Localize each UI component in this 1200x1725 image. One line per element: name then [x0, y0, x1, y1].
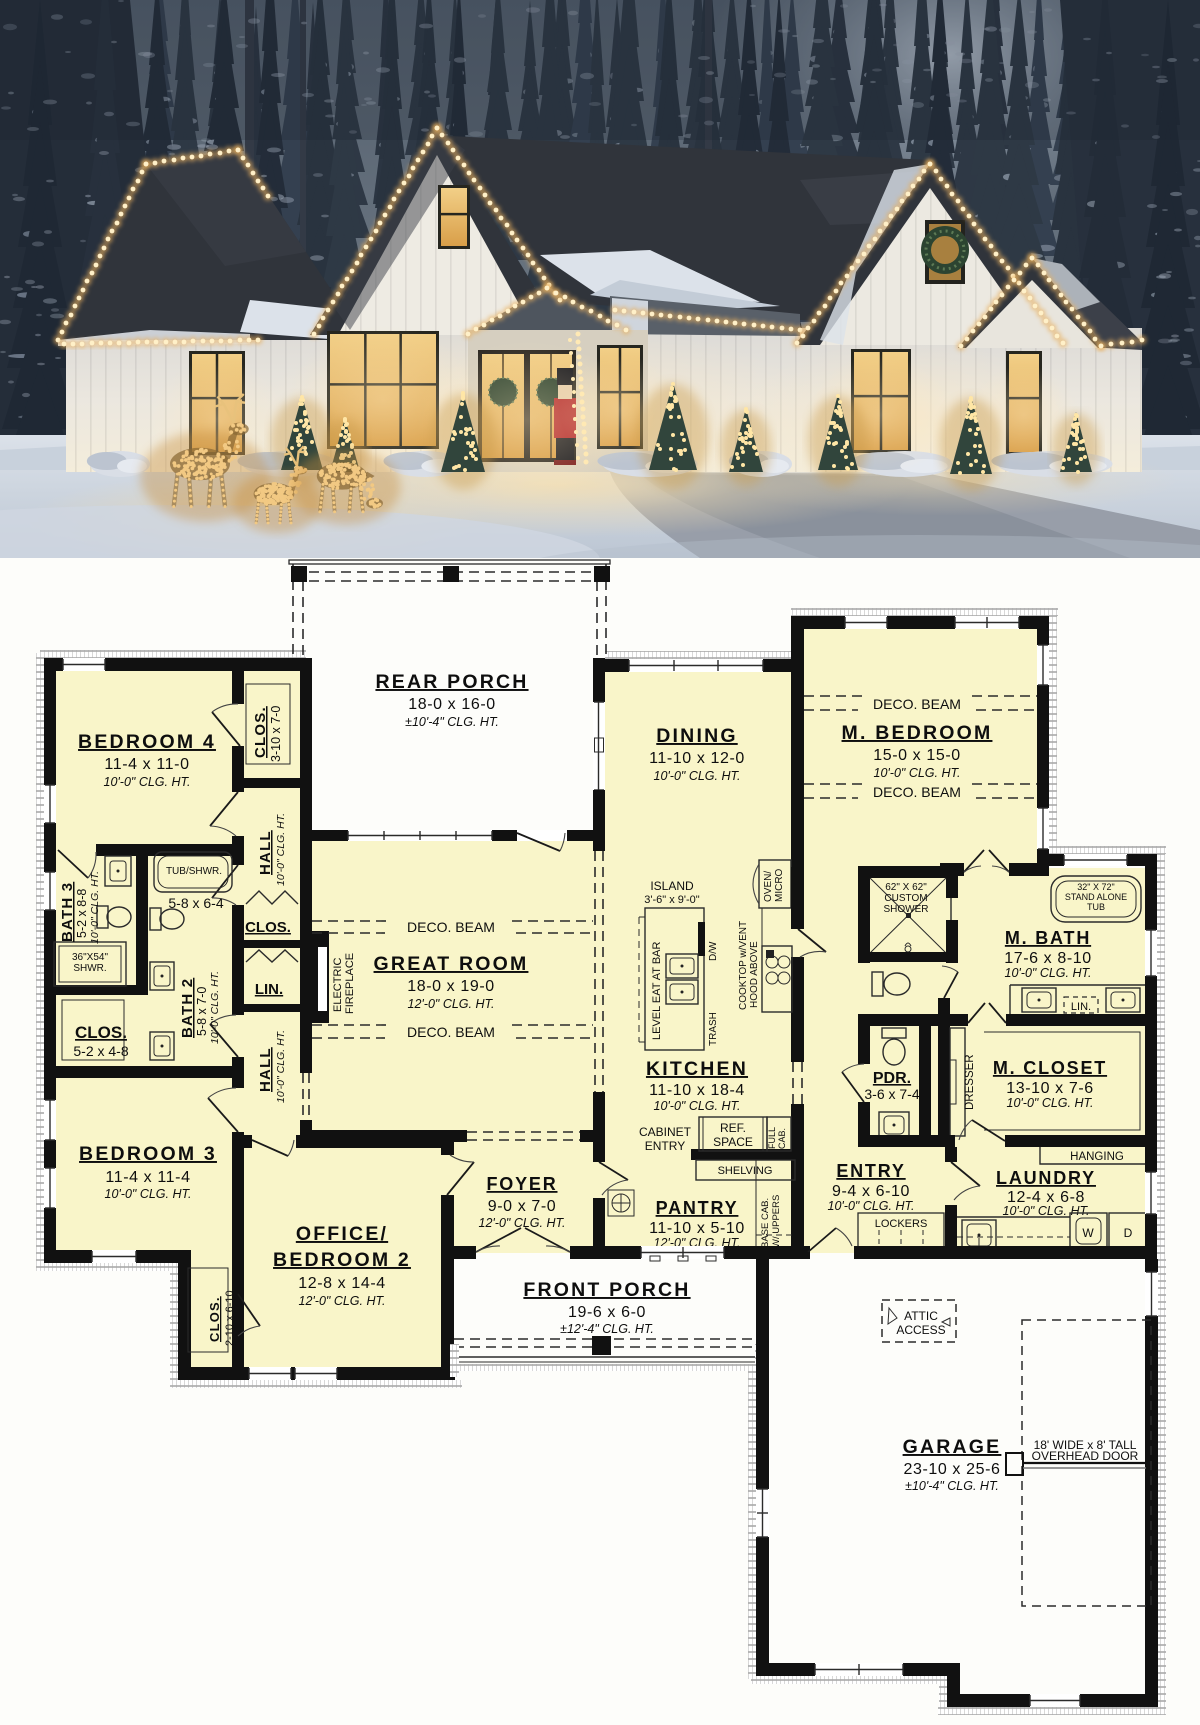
svg-text:5-2 x 8-8: 5-2 x 8-8: [75, 889, 89, 938]
svg-text:10'-0" CLG. HT.: 10'-0" CLG. HT.: [89, 871, 101, 944]
svg-text:D: D: [1124, 1226, 1133, 1240]
svg-text:23-10 x 25-6: 23-10 x 25-6: [903, 1461, 1000, 1478]
svg-text:CLOS.: CLOS.: [245, 919, 291, 936]
svg-text:±10'-4" CLG. HT.: ±10'-4" CLG. HT.: [405, 715, 499, 729]
svg-text:REAR PORCH: REAR PORCH: [375, 671, 528, 693]
svg-text:MICRO: MICRO: [774, 868, 785, 902]
svg-text:5-8 x 7-0: 5-8 x 7-0: [195, 987, 209, 1036]
svg-text:5-2 x 4-8: 5-2 x 4-8: [73, 1043, 128, 1059]
svg-text:19-6 x 6-0: 19-6 x 6-0: [568, 1304, 646, 1321]
svg-text:STAND ALONE: STAND ALONE: [1065, 892, 1127, 902]
svg-text:10'-0" CLG. HT.: 10'-0" CLG. HT.: [105, 1187, 192, 1201]
svg-text:LEVEL EAT AT BAR: LEVEL EAT AT BAR: [651, 942, 663, 1040]
svg-text:CUSTOM: CUSTOM: [884, 893, 927, 904]
svg-text:DECO. BEAM: DECO. BEAM: [407, 919, 495, 935]
svg-text:TUB: TUB: [1087, 902, 1105, 912]
svg-text:10'-0" CLG. HT.: 10'-0" CLG. HT.: [1003, 1204, 1090, 1218]
svg-text:12-8 x 14-4: 12-8 x 14-4: [298, 1275, 386, 1292]
svg-text:SHWR.: SHWR.: [73, 963, 106, 974]
svg-text:10'-0" CLG. HT.: 10'-0" CLG. HT.: [828, 1199, 915, 1213]
svg-text:GREAT ROOM: GREAT ROOM: [374, 953, 529, 975]
svg-text:3'-6" x 9'-0": 3'-6" x 9'-0": [644, 894, 700, 906]
svg-text:10'-0" CLG. HT.: 10'-0" CLG. HT.: [654, 1099, 741, 1113]
svg-text:ENTRY: ENTRY: [645, 1139, 685, 1153]
svg-text:W/ UPPERS: W/ UPPERS: [771, 1195, 782, 1248]
svg-text:CABINET: CABINET: [639, 1125, 692, 1139]
svg-text:LIN.: LIN.: [1071, 1001, 1091, 1013]
svg-text:OVERHEAD DOOR: OVERHEAD DOOR: [1032, 1449, 1139, 1463]
svg-text:11-4 x 11-4: 11-4 x 11-4: [105, 1169, 190, 1186]
svg-text:M. BEDROOM: M. BEDROOM: [842, 722, 993, 744]
svg-text:9-0 x 7-0: 9-0 x 7-0: [488, 1198, 557, 1215]
svg-text:12'-0" CLG. HT.: 12'-0" CLG. HT.: [479, 1216, 566, 1230]
svg-text:LIN.: LIN.: [255, 981, 283, 998]
svg-text:ELECTRIC: ELECTRIC: [332, 958, 344, 1012]
svg-text:10'-0" CLG. HT.: 10'-0" CLG. HT.: [654, 769, 741, 783]
svg-text:ENTRY: ENTRY: [836, 1161, 905, 1181]
svg-text:DECO. BEAM: DECO. BEAM: [873, 784, 961, 800]
svg-text:SHELVING: SHELVING: [718, 1165, 773, 1177]
svg-text:HANGING: HANGING: [1070, 1151, 1124, 1163]
svg-text:32" X 72": 32" X 72": [1077, 882, 1114, 892]
svg-text:FULL: FULL: [767, 1127, 777, 1149]
svg-text:HOOD ABOVE: HOOD ABOVE: [749, 941, 760, 1008]
svg-text:18-0 x 16-0: 18-0 x 16-0: [408, 696, 496, 713]
svg-text:D/W: D/W: [708, 941, 719, 961]
svg-text:11-10 x 5-10: 11-10 x 5-10: [649, 1220, 745, 1237]
svg-text:FRONT PORCH: FRONT PORCH: [523, 1279, 690, 1301]
svg-text:TUB/SHWR.: TUB/SHWR.: [166, 866, 222, 877]
svg-text:5-8 x 6-4: 5-8 x 6-4: [168, 895, 223, 911]
svg-text:10'-0" CLG. HT.: 10'-0" CLG. HT.: [1005, 966, 1092, 980]
svg-text:ISLAND: ISLAND: [650, 879, 694, 893]
svg-text:DECO. BEAM: DECO. BEAM: [873, 696, 961, 712]
svg-text:PANTRY: PANTRY: [656, 1198, 739, 1218]
svg-text:10'-0" CLG. HT.: 10'-0" CLG. HT.: [209, 971, 221, 1044]
svg-text:REF.: REF.: [720, 1121, 746, 1135]
svg-text:11-10 x 18-4: 11-10 x 18-4: [649, 1082, 745, 1099]
svg-text:CLOS.: CLOS.: [252, 706, 269, 758]
svg-text:KITCHEN: KITCHEN: [646, 1058, 748, 1080]
svg-text:M. BATH: M. BATH: [1005, 928, 1091, 948]
svg-text:HALL: HALL: [257, 1047, 274, 1092]
svg-text:10'-0" CLG. HT.: 10'-0" CLG. HT.: [1007, 1096, 1094, 1110]
svg-text:36"X54": 36"X54": [72, 952, 108, 963]
svg-text:10'-0" CLG. HT.: 10'-0" CLG. HT.: [275, 813, 287, 886]
svg-text:M. CLOSET: M. CLOSET: [993, 1058, 1107, 1078]
svg-text:ATTIC: ATTIC: [904, 1309, 938, 1323]
svg-text:CLOS.: CLOS.: [207, 1296, 222, 1342]
svg-text:LAUNDRY: LAUNDRY: [996, 1168, 1096, 1188]
svg-text:17-6 x 8-10: 17-6 x 8-10: [1004, 950, 1092, 967]
svg-text:62" X 62": 62" X 62": [885, 882, 927, 893]
svg-text:SPACE: SPACE: [713, 1135, 753, 1149]
svg-text:10'-0" CLG. HT.: 10'-0" CLG. HT.: [275, 1030, 287, 1103]
svg-text:SHOWER: SHOWER: [884, 904, 929, 915]
svg-text:12'-0" CLG. HT.: 12'-0" CLG. HT.: [408, 997, 495, 1011]
svg-text:BATH 2: BATH 2: [179, 978, 196, 1038]
svg-text:10'-0" CLG. HT.: 10'-0" CLG. HT.: [104, 775, 191, 789]
svg-text:DECO. BEAM: DECO. BEAM: [407, 1024, 495, 1040]
svg-text:DRESSER: DRESSER: [964, 1054, 976, 1110]
svg-text:BEDROOM 3: BEDROOM 3: [79, 1143, 217, 1165]
svg-text:BEDROOM 2: BEDROOM 2: [273, 1249, 411, 1271]
svg-text:PDR.: PDR.: [873, 1070, 911, 1087]
svg-text:13-10 x 7-6: 13-10 x 7-6: [1006, 1080, 1094, 1097]
svg-text:FIREPLACE: FIREPLACE: [344, 953, 356, 1014]
svg-text:CLOS.: CLOS.: [75, 1023, 127, 1042]
svg-text:CAB.: CAB.: [777, 1128, 787, 1149]
svg-text:18-0 x 19-0: 18-0 x 19-0: [407, 978, 495, 995]
svg-text:BATH 3: BATH 3: [59, 882, 76, 942]
svg-text:12'-0" CLG. HT.: 12'-0" CLG. HT.: [299, 1294, 386, 1308]
svg-text:BEDROOM 4: BEDROOM 4: [78, 731, 216, 753]
svg-text:ACCESS: ACCESS: [896, 1323, 945, 1337]
svg-text:11-4 x 11-0: 11-4 x 11-0: [104, 756, 189, 773]
svg-text:TRASH: TRASH: [708, 1012, 719, 1046]
svg-text:10'-0" CLG. HT.: 10'-0" CLG. HT.: [874, 766, 961, 780]
svg-text:DINING: DINING: [656, 725, 737, 747]
svg-text:LOCKERS: LOCKERS: [875, 1218, 928, 1230]
svg-text:±12'-4" CLG. HT.: ±12'-4" CLG. HT.: [560, 1322, 654, 1336]
svg-text:GARAGE: GARAGE: [903, 1436, 1002, 1458]
svg-text:OFFICE/: OFFICE/: [296, 1223, 388, 1245]
svg-text:BASE CAB.: BASE CAB.: [760, 1198, 771, 1248]
svg-text:9-4 x 6-10: 9-4 x 6-10: [832, 1183, 910, 1200]
svg-text:FOYER: FOYER: [486, 1174, 557, 1194]
svg-text:W: W: [1082, 1226, 1094, 1240]
svg-text:3-6 x 7-4: 3-6 x 7-4: [864, 1086, 919, 1102]
svg-text:COOKTOP w/VENT: COOKTOP w/VENT: [738, 921, 749, 1010]
svg-text:2-10 x 6-10: 2-10 x 6-10: [224, 1290, 236, 1346]
svg-text:3-10 x 7-0: 3-10 x 7-0: [269, 706, 283, 762]
svg-text:OVEN/: OVEN/: [763, 871, 774, 902]
svg-text:11-10 x 12-0: 11-10 x 12-0: [649, 750, 745, 767]
svg-text:±10'-4" CLG. HT.: ±10'-4" CLG. HT.: [905, 1479, 999, 1493]
svg-text:15-0 x 15-0: 15-0 x 15-0: [873, 747, 961, 764]
svg-text:HALL: HALL: [257, 830, 274, 875]
